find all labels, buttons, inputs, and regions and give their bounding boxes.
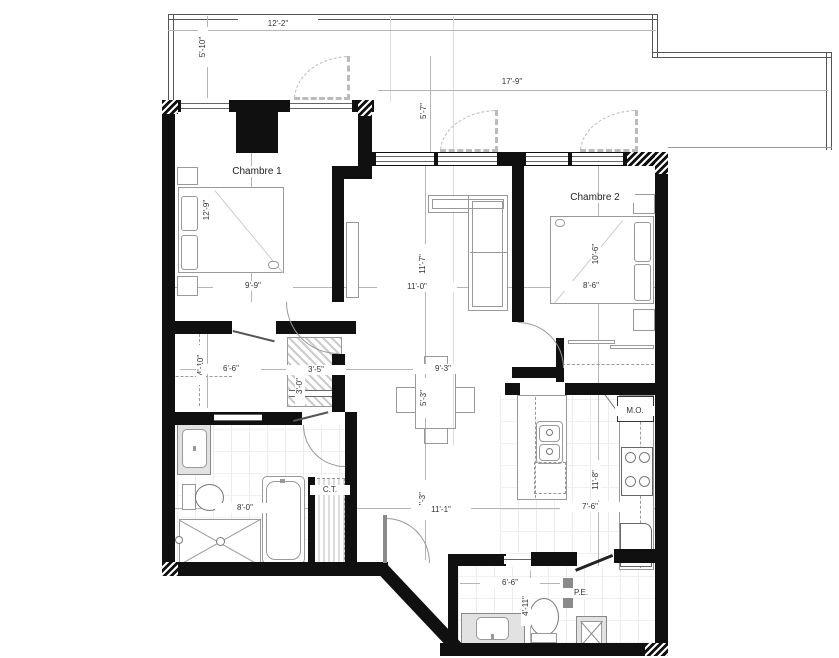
dim-hall-width: 11'-1" [411,505,471,515]
wall [565,383,668,395]
nightstand [633,309,655,331]
dim-balcony1-width: 12'-2" [238,19,318,29]
wall [505,383,520,395]
dim-balcony1-height: 5'-10" [198,27,208,67]
closet-rod [562,364,654,365]
nightstand [177,276,198,296]
door-swing-chambre2 [518,322,564,368]
sink-drain [546,429,553,436]
label-entry-closet: P.E. [561,588,601,598]
label-water-heater: C.T. [310,485,350,495]
toilet-bowl [529,598,559,636]
balcony-edge-line [668,147,832,148]
sliding-closet-door [610,345,654,349]
bedside-item [555,219,565,227]
door-swing-hall [386,518,430,563]
window-mullion [434,152,438,166]
dim-walkin-width: 6'-6" [201,364,261,374]
balcony-door-swing [580,110,638,152]
wall [162,321,232,334]
concrete-column [358,100,372,116]
dim-balcony2-height: 5'-7" [419,91,429,131]
sliding-closet-door [568,340,615,344]
window [181,100,229,112]
dining-chair [455,387,475,413]
window [290,100,352,112]
wall [332,354,345,412]
room-label-chambre2: Chambre 2 [555,192,635,203]
dim-living-depth: 11'-7" [418,244,428,284]
dim-kitchen-width: 7'-6" [560,502,620,512]
faucet [491,634,494,639]
pillow [181,196,198,231]
wall [440,643,668,656]
stove-burner [625,476,636,487]
dim-dining-width: 9'-3" [413,364,473,374]
dim-powder-width: 6'-6" [480,578,540,588]
dim-chambre2-depth: 10'-6" [591,234,601,274]
wall [655,152,668,655]
wall [162,100,175,576]
wall [448,554,506,566]
dishwasher [534,462,566,494]
dimension-line [168,30,656,31]
dining-chair [396,387,416,413]
sink-drain [546,448,553,455]
stove-burner [639,476,650,487]
wall [236,100,278,153]
wall [614,549,658,563]
bathtub-inner [266,481,301,560]
wall [512,367,560,378]
wall [448,556,458,651]
pillow [634,222,651,262]
wall [162,562,388,576]
dimension-line [430,56,431,152]
tub-faucet [280,479,285,483]
walkin-door-leaf [233,330,275,342]
dim-bathroom-width: 8'-0" [215,503,275,513]
dresser [346,222,359,298]
pillow [181,235,198,270]
dining-chair [424,428,448,444]
dim-powder-depth: 4'-11" [521,586,531,626]
toilet-tank [531,633,557,643]
balcony-railing [826,52,832,150]
window [504,556,532,564]
toilet-tank [182,484,196,510]
balcony-railing [168,14,174,100]
nightstand [177,167,198,185]
concrete-column [162,562,178,576]
bedside-item [268,261,279,269]
dim-kitchen-depth: 11'-8" [591,460,601,500]
nightstand [633,194,655,214]
balcony-door-swing [294,56,350,100]
dim-living-width: 11'-0" [377,282,457,292]
wall [332,166,344,302]
faucet [193,446,196,451]
room-label-chambre1: Chambre 1 [217,166,297,177]
wall [531,552,577,566]
concrete-column [655,152,668,174]
wall [512,166,524,322]
dim-chambre1-width: 9'-9" [213,281,293,291]
balcony-door-swing [440,110,498,152]
label-microwave: M.O. [615,406,655,416]
stove-burner [639,452,650,463]
dim-balcony2-width: 17'-9" [472,77,552,87]
dim-chambre2-width: 8'-6" [551,281,631,291]
pocket-opening [214,414,262,421]
sofa-cushion-divider [470,252,507,253]
shower-head [175,536,183,544]
shower-drain [216,537,225,546]
stove-burner [625,452,636,463]
window-mullion [568,152,572,166]
door-leaf [383,515,387,563]
dim-dining-depth: 5'-3" [419,378,429,418]
dimension-line [378,90,828,91]
sofa-cushion [472,201,503,307]
dim-chambre1-depth: 12'-9" [202,190,212,230]
pillow [634,264,651,301]
window [526,153,623,165]
concrete-column [645,643,668,656]
dim-closet-depth: 3'-0" [295,366,305,406]
concrete-column [162,100,178,114]
floor-plan: 12'-2" 5'-10" 17'-9" 5'-7" Chambre 1 12'… [0,0,839,658]
balcony-railing [652,52,832,58]
